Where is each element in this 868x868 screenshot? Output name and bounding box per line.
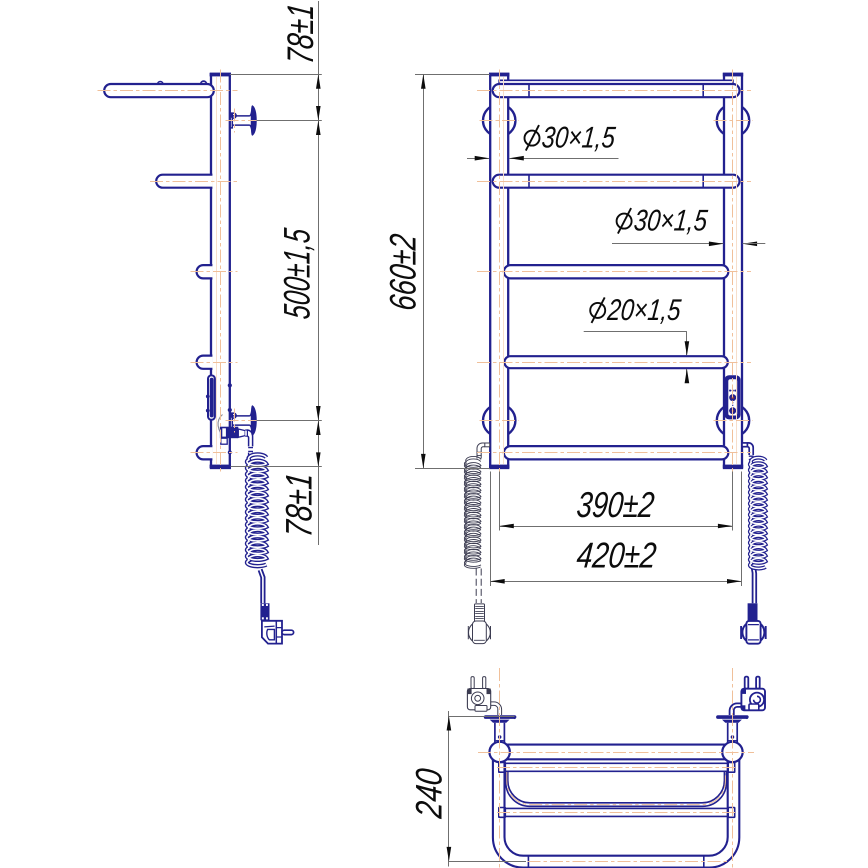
svg-text:78±1: 78±1: [280, 2, 321, 66]
svg-text:20×1,5: 20×1,5: [605, 294, 683, 327]
svg-text:30×1,5: 30×1,5: [540, 122, 617, 155]
svg-text:390±2: 390±2: [575, 484, 656, 525]
svg-text:78±1: 78±1: [279, 471, 320, 539]
svg-text:500±1,5: 500±1,5: [277, 226, 318, 321]
svg-text:660±2: 660±2: [383, 232, 424, 313]
svg-text:420±2: 420±2: [575, 535, 658, 576]
svg-text:240: 240: [409, 766, 450, 820]
svg-text:30×1,5: 30×1,5: [632, 205, 709, 238]
